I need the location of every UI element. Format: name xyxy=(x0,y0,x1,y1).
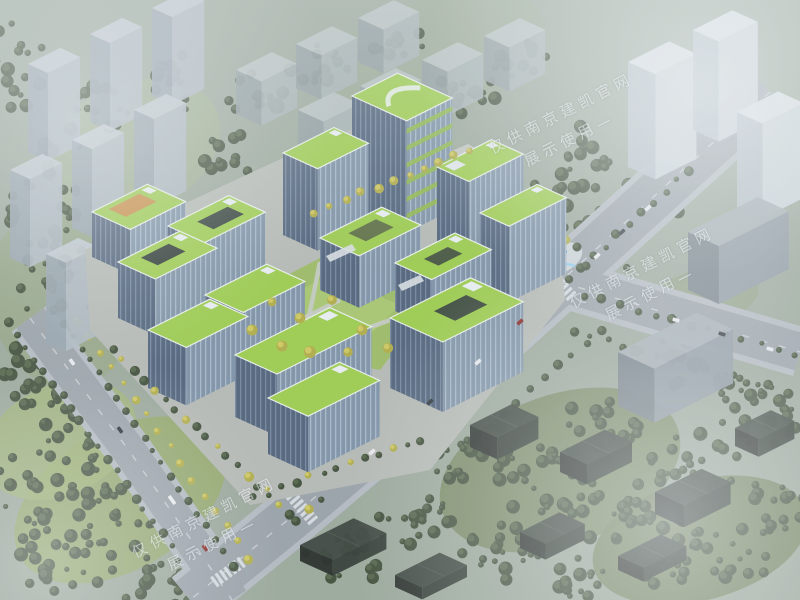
aerial-rendering: 仅供南京建凯官网 展示使用— 仅供南京建凯官网 展示使用— 仅供南京建凯官网 展… xyxy=(0,0,800,600)
fog xyxy=(0,0,800,600)
aerial-scene xyxy=(0,0,800,600)
